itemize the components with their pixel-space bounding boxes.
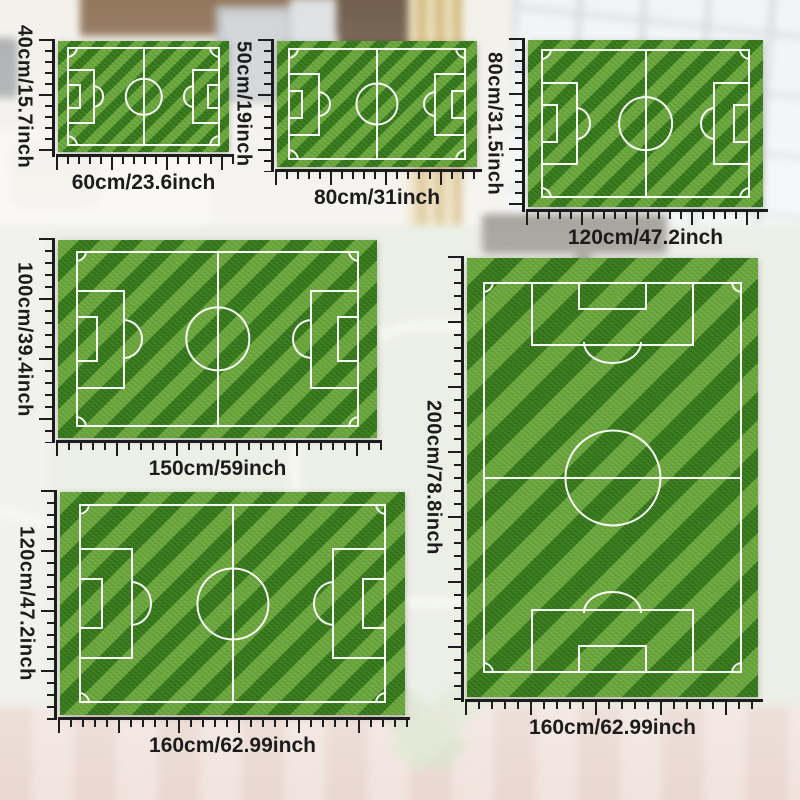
soccer-field-rug [58, 41, 229, 152]
height-ruler [446, 256, 464, 702]
width-dimension-label: 150cm/59inch [38, 457, 397, 481]
width-ruler [465, 699, 763, 717]
width-dimension-label: 160cm/62.99inch [40, 734, 425, 758]
size-variant-60x40: 40cm/15.7inch 60cm/23.6inch [58, 41, 229, 152]
goal-box-left [76, 316, 99, 362]
goal-box-left [288, 90, 303, 119]
soccer-field-rug [528, 40, 763, 207]
height-ruler [256, 39, 274, 172]
height-ruler [37, 238, 55, 443]
goal-box-right [733, 104, 750, 142]
size-variant-160x120: 120cm/47.2inch 160cm/62.99inch [60, 492, 405, 715]
soccer-field-rug [467, 258, 758, 697]
width-dimension-label: 160cm/62.99inch [447, 716, 778, 740]
height-dimension-label: 80cm/31.5inch [481, 22, 507, 225]
height-ruler [507, 38, 525, 212]
goal-box-bottom [578, 645, 648, 673]
height-ruler [37, 39, 55, 157]
size-variant-120x80: 80cm/31.5inch 120cm/47.2inch [528, 40, 763, 207]
width-dimension-label: 60cm/23.6inch [38, 171, 249, 195]
width-dimension-label: 80cm/31inch [257, 186, 497, 210]
goal-box-right [362, 578, 386, 629]
size-variant-80x50: 50cm/19inch 80cm/31inch [277, 41, 477, 167]
soccer-field-rug [60, 492, 405, 715]
height-dimension-label: 120cm/47.2inch [13, 474, 39, 733]
goal-box-top [578, 282, 648, 310]
goal-box-left [79, 578, 103, 629]
width-ruler [58, 717, 410, 735]
height-dimension-label: 40cm/15.7inch [11, 23, 37, 170]
width-ruler [56, 154, 234, 172]
height-dimension-label: 200cm/78.8inch [420, 240, 446, 715]
center-circle [564, 429, 661, 526]
soccer-field-rug [58, 240, 377, 438]
center-circle [618, 96, 674, 152]
goal-box-left [541, 104, 558, 142]
center-circle [196, 567, 269, 640]
height-dimension-label: 50cm/19inch [230, 23, 256, 185]
center-circle [355, 82, 398, 125]
height-ruler [39, 490, 57, 720]
goal-box-right [207, 84, 220, 110]
goal-box-right [451, 90, 466, 119]
soccer-field-rug [277, 41, 477, 167]
height-dimension-label: 100cm/39.4inch [11, 222, 37, 456]
goal-box-right [337, 316, 360, 362]
width-ruler [56, 440, 382, 458]
goal-box-left [67, 84, 80, 110]
width-dimension-label: 120cm/47.2inch [508, 226, 783, 250]
width-ruler [526, 209, 768, 227]
size-variant-150x100: 100cm/39.4inch 150cm/59inch [58, 240, 377, 438]
width-ruler [275, 169, 482, 187]
product-size-chart-image: 40cm/15.7inch 60cm/23.6inch 50cm/19inch [0, 0, 800, 800]
size-variant-160x200: 200cm/78.8inch 160cm/62.99inch [467, 258, 758, 697]
